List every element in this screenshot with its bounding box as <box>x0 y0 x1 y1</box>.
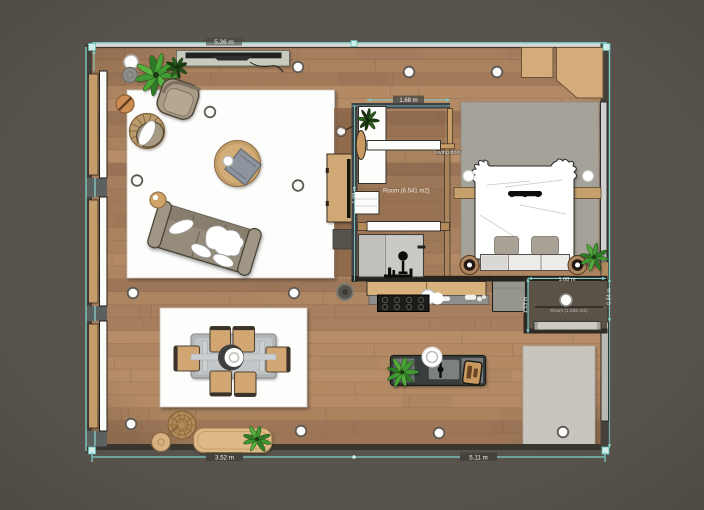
svg-text:Room (6.541 m2): Room (6.541 m2) <box>383 189 430 195</box>
svg-text:Living door: Living door <box>435 150 462 156</box>
svg-text:1.13 m: 1.13 m <box>523 296 529 313</box>
svg-text:3.52 m: 3.52 m <box>215 455 234 462</box>
svg-text:0.84 m: 0.84 m <box>607 288 613 305</box>
svg-text:5.11 m: 5.11 m <box>469 455 487 462</box>
svg-text:1.68 m: 1.68 m <box>399 98 417 104</box>
svg-text:5.36 m: 5.36 m <box>214 39 234 46</box>
svg-text:Room (1.555 m2): Room (1.555 m2) <box>550 308 588 314</box>
svg-text:1.98 m: 1.98 m <box>352 186 358 203</box>
svg-text:1.68 m: 1.68 m <box>558 277 575 283</box>
